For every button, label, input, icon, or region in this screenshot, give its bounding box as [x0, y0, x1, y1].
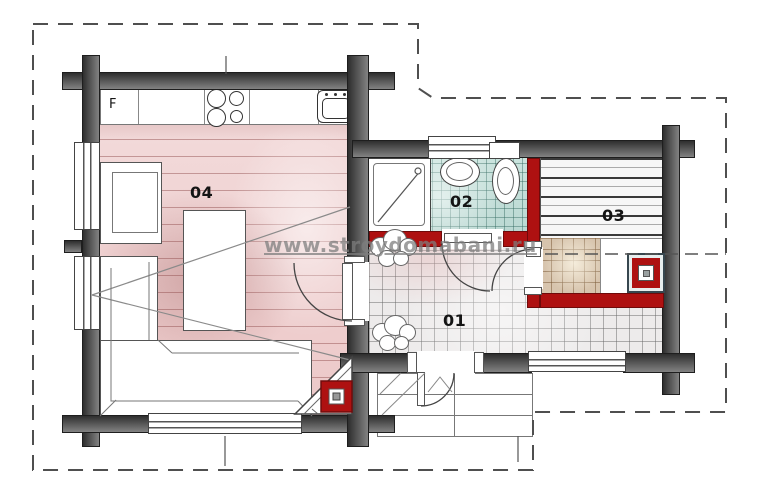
cabinet-divider [204, 89, 205, 124]
window-left-lower [74, 256, 100, 330]
room-label-bath: 02 [450, 192, 473, 211]
floor-sauna [540, 238, 602, 294]
door-leaf-entrance [417, 372, 425, 406]
shower-tray [368, 158, 431, 232]
plant [372, 315, 418, 355]
sauna-stove [627, 253, 665, 293]
washbasin-bowl [446, 162, 473, 181]
kitchen-counter [100, 88, 352, 125]
red-wall-sauna-bottom [540, 293, 664, 308]
step-divider [454, 374, 455, 436]
log-end-stub [64, 240, 82, 253]
washbasin [440, 157, 480, 187]
toilet-tank [489, 142, 520, 159]
room-label-living: 04 [190, 183, 213, 202]
fridge-label: F [109, 97, 117, 112]
door-jamb [344, 256, 365, 263]
sink-basin [322, 98, 350, 119]
shower-basin [373, 163, 425, 226]
wall-ext-bottom [623, 353, 695, 373]
faucet-dot [334, 93, 337, 96]
window-main-bottom [148, 413, 302, 434]
toilet-bowl [492, 158, 520, 204]
step-edge [378, 394, 532, 395]
door-jamb [524, 287, 542, 295]
corner-sofa-horizontal [100, 340, 312, 416]
door-opening-entrance [417, 351, 475, 374]
hob-burner [207, 108, 226, 127]
wall-main-top [62, 72, 395, 90]
floor-plan: F 04 02 03 01 www.stroydomabani.ru [0, 0, 760, 500]
hob-burner [207, 89, 226, 108]
step-edge [378, 415, 532, 416]
window-left-upper [74, 142, 100, 230]
sauna-benches [540, 158, 662, 238]
wall-ext-top [352, 140, 695, 158]
wall-main-left [82, 55, 100, 447]
porch-steps [377, 373, 533, 437]
room-label-sauna: 03 [602, 206, 625, 225]
window-bathroom-top [428, 136, 496, 159]
watermark: www.stroydomabani.ru [264, 233, 537, 257]
armchair-seat [112, 172, 158, 233]
cabinet-divider [249, 89, 250, 124]
hob-burner [230, 110, 243, 123]
faucet-dot [325, 93, 328, 96]
dining-table [183, 210, 246, 331]
faucet-dot [343, 93, 346, 96]
door-jamb [344, 319, 365, 326]
sauna-stove-center [643, 270, 650, 277]
toilet-bowl-inner [497, 167, 514, 195]
door-leaf-living-hall [342, 263, 353, 320]
room-label-hall: 01 [443, 311, 466, 330]
hob-burner [229, 91, 244, 106]
door-jamb [407, 352, 417, 373]
door-jamb [474, 352, 484, 373]
wall-ext-bottom [340, 353, 417, 373]
armchair [100, 162, 162, 244]
cabinet-divider [138, 89, 139, 124]
window-hall-bottom [528, 351, 626, 372]
